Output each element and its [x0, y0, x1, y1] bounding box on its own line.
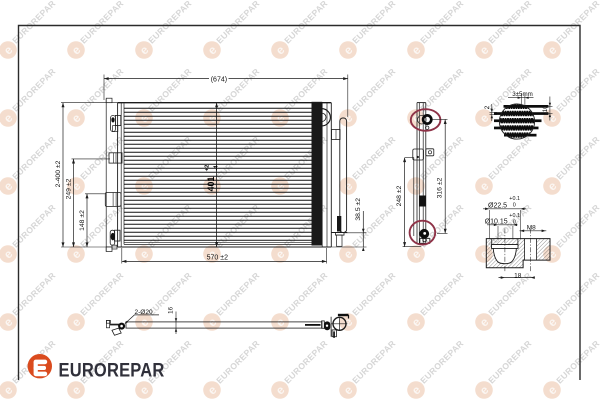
svg-text:EUROREPAR: EUROREPAR: [486, 0, 534, 46]
svg-text:EUROREPAR: EUROREPAR: [554, 270, 600, 318]
svg-text:EUROREPAR: EUROREPAR: [350, 0, 398, 46]
svg-text:EUROREPAR: EUROREPAR: [486, 134, 534, 182]
svg-text:EUROREPAR: EUROREPAR: [554, 0, 600, 46]
svg-text:249 ±2: 249 ±2: [66, 178, 73, 199]
svg-text:EUROREPAR: EUROREPAR: [10, 66, 58, 114]
svg-text:EUROREPAR: EUROREPAR: [350, 270, 398, 318]
svg-text:EUROREPAR: EUROREPAR: [486, 270, 534, 318]
svg-text:EUROREPAR: EUROREPAR: [418, 202, 466, 250]
svg-text:EUROREPAR: EUROREPAR: [146, 0, 194, 46]
svg-text:38.5 ±2: 38.5 ±2: [355, 198, 362, 221]
svg-text:(674): (674): [211, 76, 227, 83]
svg-text:+0.1: +0.1: [509, 196, 520, 202]
svg-text:+2: +2: [205, 165, 211, 172]
svg-text:EUROREPAR: EUROREPAR: [350, 66, 398, 114]
svg-text:EUROREPAR: EUROREPAR: [282, 66, 330, 114]
svg-text:248 ±2: 248 ±2: [396, 185, 403, 206]
svg-text:EUROREPAR: EUROREPAR: [214, 270, 262, 318]
svg-text:EUROREPAR: EUROREPAR: [282, 338, 330, 386]
svg-text:EUROREPAR: EUROREPAR: [214, 338, 262, 386]
svg-text:EUROREPAR: EUROREPAR: [418, 338, 466, 386]
svg-text:EUROREPAR: EUROREPAR: [350, 338, 398, 386]
svg-text:0: 0: [513, 203, 516, 209]
svg-text:+0.1: +0.1: [509, 213, 520, 219]
svg-text:EUROREPAR: EUROREPAR: [214, 134, 262, 182]
svg-text:316 ±2: 316 ±2: [436, 177, 443, 198]
svg-text:EUROREPAR: EUROREPAR: [554, 202, 600, 250]
svg-text:18: 18: [514, 272, 522, 279]
svg-text:EUROREPAR: EUROREPAR: [418, 0, 466, 46]
svg-text:EUROREPAR: EUROREPAR: [554, 134, 600, 182]
svg-text:EUROREPAR: EUROREPAR: [554, 338, 600, 386]
svg-text:16: 16: [168, 306, 175, 313]
svg-text:EUROREPAR: EUROREPAR: [78, 270, 126, 318]
svg-text:EUROREPAR: EUROREPAR: [282, 270, 330, 318]
svg-text:EUROREPAR: EUROREPAR: [78, 0, 126, 46]
svg-text:2-400 ±2: 2-400 ±2: [55, 160, 62, 187]
svg-text:EUROREPAR: EUROREPAR: [10, 202, 58, 250]
svg-text:EUROREPAR: EUROREPAR: [146, 66, 194, 114]
svg-text:EUROREPAR: EUROREPAR: [10, 134, 58, 182]
svg-text:EUROREPAR: EUROREPAR: [418, 270, 466, 318]
svg-text:EUROREPAR: EUROREPAR: [282, 134, 330, 182]
svg-text:EUROREPAR: EUROREPAR: [214, 0, 262, 46]
svg-text:EUROREPAR: EUROREPAR: [350, 134, 398, 182]
svg-text:EUROREPAR: EUROREPAR: [78, 66, 126, 114]
svg-text:EUROREPAR: EUROREPAR: [486, 338, 534, 386]
svg-text:EUROREPAR: EUROREPAR: [418, 134, 466, 182]
svg-text:EUROREPAR: EUROREPAR: [10, 0, 58, 46]
svg-text:EUROREPAR: EUROREPAR: [418, 66, 466, 114]
svg-text:EUROREPAR: EUROREPAR: [214, 66, 262, 114]
svg-text:148 ±2: 148 ±2: [79, 210, 86, 231]
svg-text:EUROREPAR: EUROREPAR: [59, 359, 165, 381]
svg-text:EUROREPAR: EUROREPAR: [282, 0, 330, 46]
svg-text:401: 401: [206, 177, 216, 192]
svg-text:EUROREPAR: EUROREPAR: [10, 270, 58, 318]
svg-text:10: 10: [542, 105, 549, 112]
svg-text:EUROREPAR: EUROREPAR: [554, 66, 600, 114]
svg-text:-4: -4: [213, 165, 219, 171]
svg-text:3±5mm: 3±5mm: [512, 91, 533, 98]
svg-text:Ø22.5: Ø22.5: [488, 202, 507, 209]
svg-text:Ø10.15: Ø10.15: [485, 218, 508, 225]
svg-text:2: 2: [484, 105, 491, 109]
svg-text:570 ±2: 570 ±2: [207, 255, 228, 262]
svg-text:EUROREPAR: EUROREPAR: [146, 134, 194, 182]
svg-text:EUROREPAR: EUROREPAR: [78, 134, 126, 182]
